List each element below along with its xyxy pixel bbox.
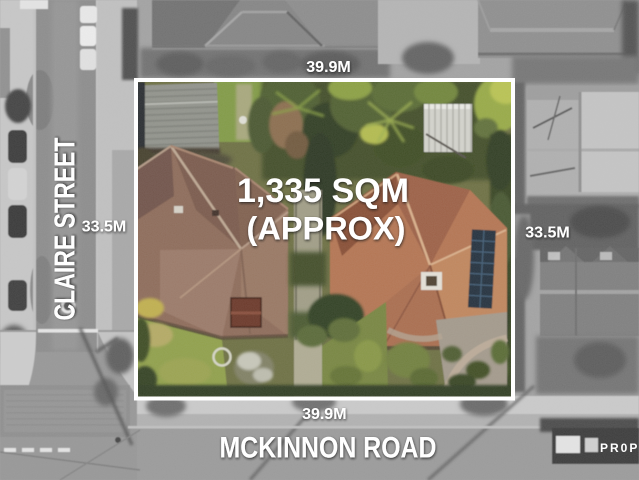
svg-text:39.9M: 39.9M xyxy=(302,406,346,423)
svg-text:1,335 SQM: 1,335 SQM xyxy=(237,172,409,210)
svg-text:(APPROX): (APPROX) xyxy=(247,211,406,247)
svg-text:39.9M: 39.9M xyxy=(306,59,350,76)
svg-text:CLAIRE STREET: CLAIRE STREET xyxy=(50,137,82,320)
svg-text:PR0P: PR0P xyxy=(600,441,639,455)
svg-text:MCKINNON ROAD: MCKINNON ROAD xyxy=(220,432,437,465)
svg-text:33.5M: 33.5M xyxy=(82,219,126,236)
svg-text:33.5M: 33.5M xyxy=(525,225,569,242)
